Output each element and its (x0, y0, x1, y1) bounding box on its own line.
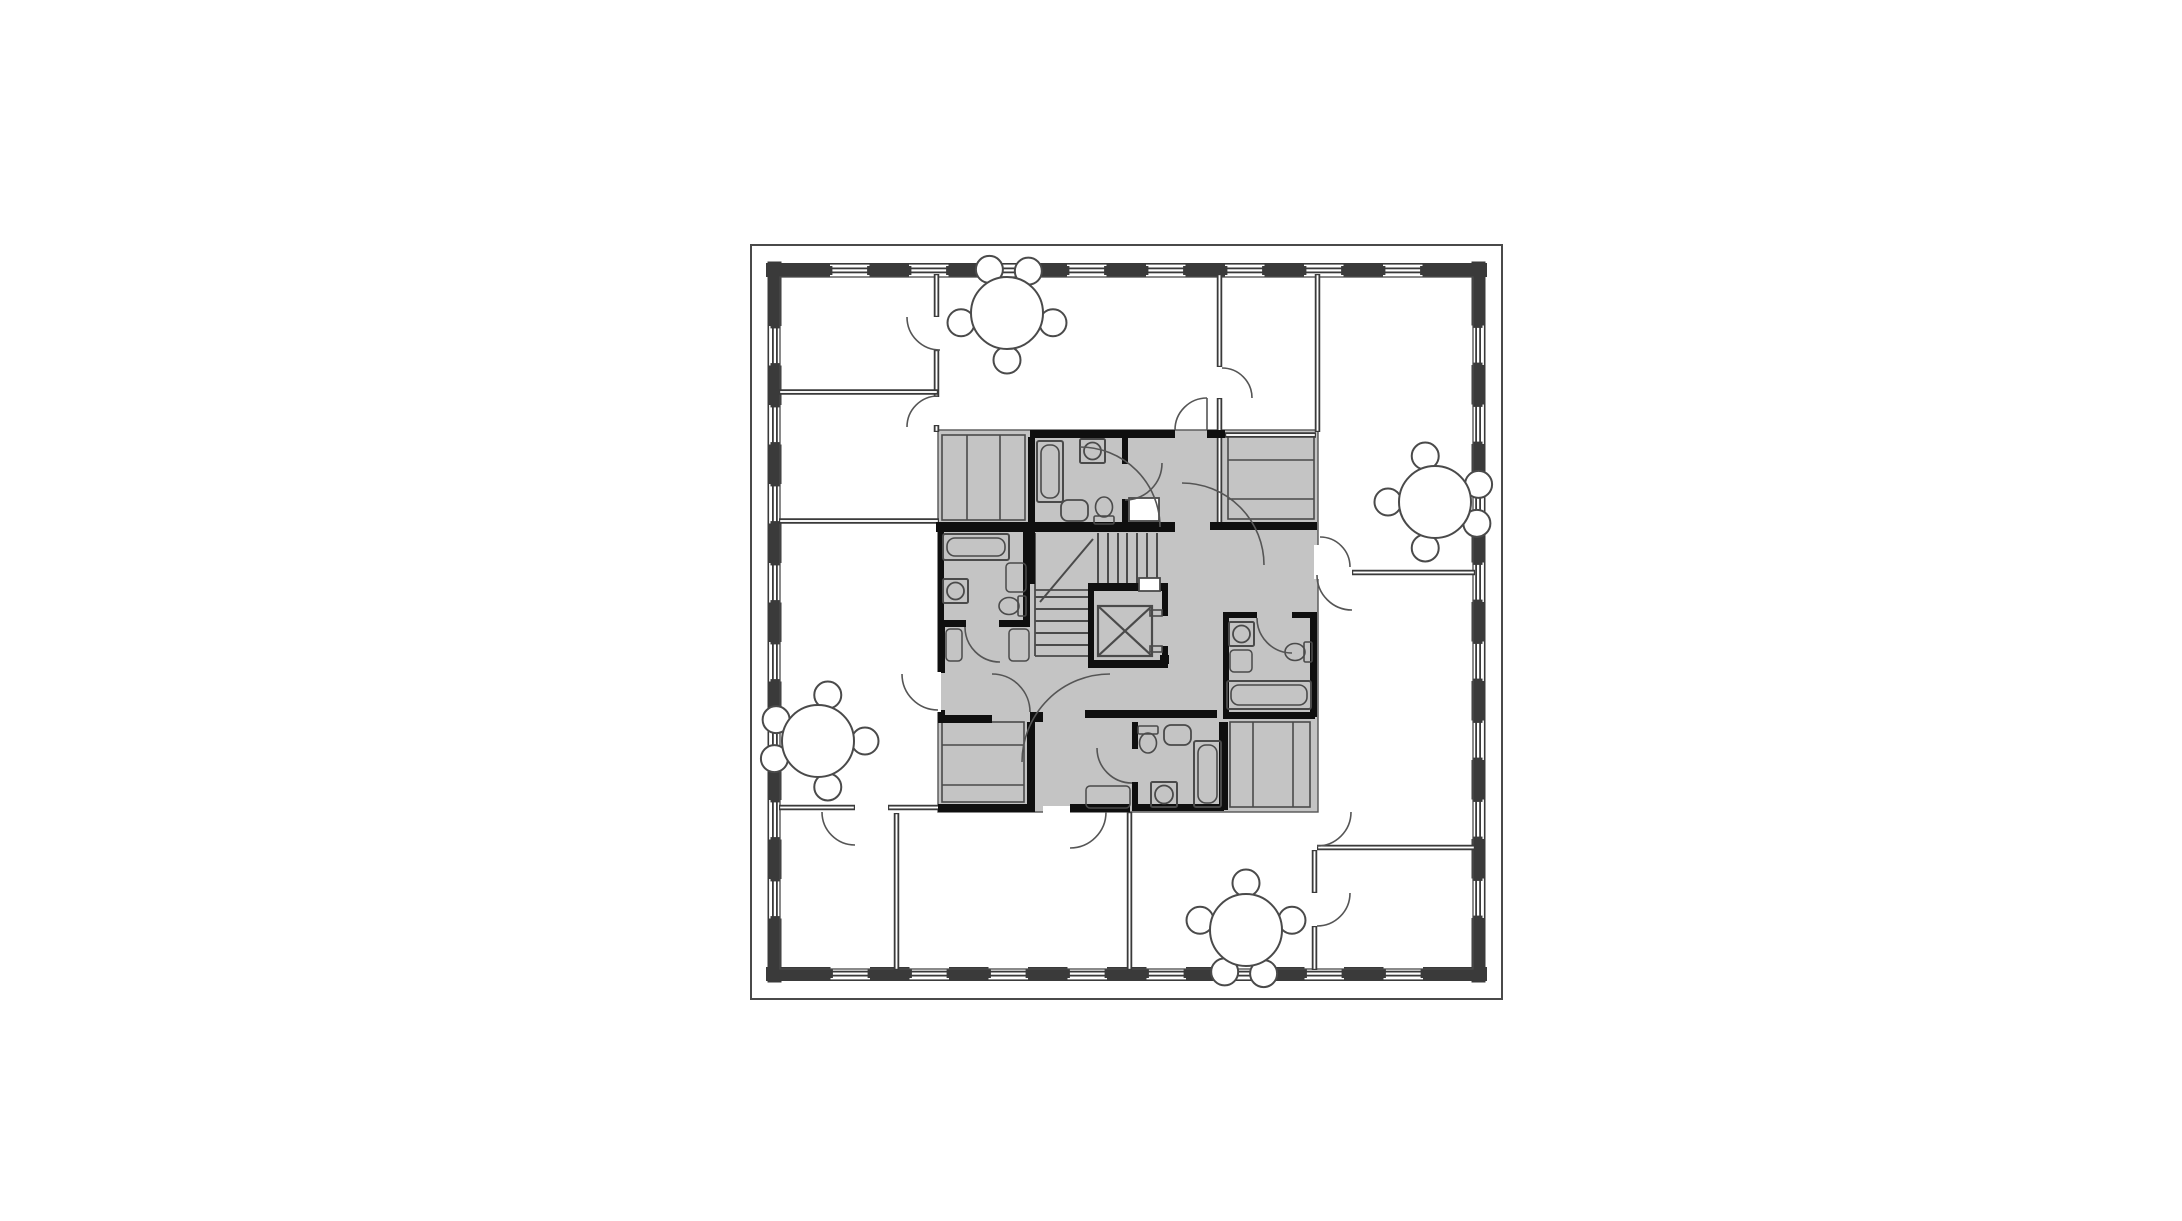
window-glazing-line (831, 975, 871, 977)
wall-pier (1265, 265, 1305, 278)
core-wall-segment (1225, 522, 1317, 530)
window-glazing-line (772, 642, 774, 682)
chair (1233, 870, 1260, 897)
window-glazing-line (776, 800, 778, 840)
window-glazing-line (772, 800, 774, 840)
window-glazing-line (1475, 405, 1477, 445)
partition-wall-core (1318, 847, 1474, 849)
window-frame-cap (1105, 969, 1109, 978)
window-frame-cap (1474, 837, 1483, 841)
window-frame-cap (1474, 916, 1483, 920)
window-glazing-line (989, 975, 1029, 977)
window-glazing-line (1384, 971, 1424, 973)
core-wall-segment (1132, 722, 1138, 749)
core-wall-segment (1030, 430, 1175, 438)
core-wall-segment (938, 804, 1035, 812)
wall-pier (1107, 265, 1147, 278)
door-opening-gap (1314, 545, 1322, 579)
window-glazing-line (772, 879, 774, 919)
window-frame-cap (1026, 969, 1030, 978)
window-glazing-line (909, 268, 949, 270)
window-frame-cap (947, 969, 951, 978)
core-wall-segment (1028, 437, 1035, 524)
window-glazing-line (1304, 268, 1344, 270)
partition-wall-core (896, 814, 898, 969)
window-frame-cap (1262, 266, 1266, 275)
window-glazing-line (909, 272, 949, 274)
window-glazing-line (772, 563, 774, 603)
window-glazing-line (1479, 879, 1481, 919)
partition-wall-core (780, 807, 854, 809)
core-wall-segment (999, 620, 1030, 627)
window-glazing-line (1479, 642, 1481, 682)
window-glazing-line (1475, 879, 1477, 919)
chair (994, 347, 1021, 374)
window-frame-cap (908, 266, 912, 275)
window-frame-cap (1474, 600, 1483, 604)
window-frame-cap (829, 266, 833, 275)
wall-pier (1344, 265, 1384, 278)
duct-box (1129, 498, 1159, 521)
partition-wall-core (1353, 572, 1474, 574)
window-glazing-line (1225, 272, 1265, 274)
window-frame-cap (1474, 640, 1483, 644)
window-glazing-line (1475, 326, 1477, 366)
window-glazing-line (1383, 268, 1423, 270)
window-frame-cap (1474, 679, 1483, 683)
core-wall-segment (938, 715, 992, 723)
core-wall-segment (1085, 710, 1217, 718)
window-glazing-line (1305, 971, 1345, 973)
core-wall-segment (1207, 430, 1225, 438)
window-glazing-line (776, 879, 778, 919)
facade-outer-line (768, 262, 770, 983)
window-frame-cap (1474, 363, 1483, 367)
facade-outer-line (766, 263, 1487, 265)
window-frame-cap (771, 363, 780, 367)
window-frame-cap (1303, 266, 1307, 275)
window-glazing-line (1225, 268, 1265, 270)
window-glazing-line (1147, 975, 1187, 977)
door-opening-gap (934, 672, 941, 712)
core-wall-segment (1027, 722, 1035, 805)
partition-wall-core (936, 351, 938, 396)
elevator-shaft-wall (1088, 660, 1168, 668)
window-glazing-line (1479, 405, 1481, 445)
partition-wall-core (1314, 851, 1316, 892)
window-frame-cap (1066, 266, 1070, 275)
core-wall-segment (1223, 712, 1315, 719)
partition-wall-core (1219, 399, 1221, 523)
window-frame-cap (1341, 266, 1345, 275)
partition-wall-core (1129, 813, 1131, 969)
window-frame-cap (1474, 758, 1483, 762)
window-frame-cap (1342, 969, 1346, 978)
door-opening-gap (1043, 806, 1070, 813)
window-frame-cap (771, 837, 780, 841)
dining-table (1399, 466, 1471, 538)
window-frame-cap (1303, 969, 1307, 978)
partition-wall-core (780, 520, 938, 522)
window-frame-cap (771, 404, 780, 408)
window-frame-cap (1145, 969, 1149, 978)
window-frame-cap (908, 969, 912, 978)
core-wall-segment (1210, 522, 1225, 530)
dining-table (1210, 894, 1282, 966)
window-glazing-line (1067, 268, 1107, 270)
dining-table (782, 705, 854, 777)
window-glazing-line (776, 405, 778, 445)
window-glazing-line (1146, 268, 1186, 270)
window-glazing-line (831, 971, 871, 973)
window-frame-cap (771, 916, 780, 920)
window-glazing-line (772, 326, 774, 366)
window-frame-cap (771, 679, 780, 683)
window-glazing-line (989, 971, 1029, 973)
elevator-shaft-wall (1088, 590, 1094, 665)
window-glazing-line (1479, 800, 1481, 840)
window-glazing-line (1147, 971, 1187, 973)
window-frame-cap (1474, 798, 1483, 802)
partition-wall-core (1219, 275, 1221, 366)
window-frame-cap (771, 600, 780, 604)
window-frame-cap (1474, 877, 1483, 881)
window-frame-cap (1066, 969, 1070, 978)
window-frame-cap (867, 266, 871, 275)
window-frame-cap (1474, 442, 1483, 446)
window-frame-cap (1474, 561, 1483, 565)
window-frame-cap (771, 442, 780, 446)
elevator-shaft-wall (1162, 590, 1168, 616)
floor-plan-drawing (0, 0, 2182, 1221)
window-frame-cap (1474, 719, 1483, 723)
window-frame-cap (771, 799, 780, 803)
window-glazing-line (1475, 563, 1477, 603)
chair (852, 728, 879, 755)
window-frame-cap (1382, 969, 1386, 978)
partition-wall-core (889, 807, 939, 809)
window-glazing-line (830, 272, 870, 274)
window-glazing-line (776, 563, 778, 603)
window-frame-cap (771, 325, 780, 329)
window-glazing-line (772, 405, 774, 445)
floor-plan-page (0, 0, 2182, 1221)
duct-box (1139, 578, 1160, 591)
window-glazing-line (1475, 800, 1477, 840)
window-frame-cap (1184, 969, 1188, 978)
core-wall-segment (938, 627, 945, 673)
window-glazing-line (1146, 272, 1186, 274)
window-frame-cap (1382, 266, 1386, 275)
wall-pier (870, 265, 910, 278)
window-frame-cap (771, 641, 780, 645)
window-frame-cap (771, 562, 780, 566)
window-glazing-line (1475, 721, 1477, 761)
perimeter-wall-top (766, 263, 1487, 277)
partition-wall-core (1314, 927, 1316, 969)
window-glazing-line (776, 326, 778, 366)
core-wall-segment (1292, 612, 1317, 618)
window-glazing-line (1304, 272, 1344, 274)
partition-wall-core (780, 391, 937, 393)
window-frame-cap (1104, 266, 1108, 275)
facade-outer-line (1484, 262, 1486, 983)
window-glazing-line (1475, 642, 1477, 682)
window-frame-cap (829, 969, 833, 978)
window-frame-cap (1145, 266, 1149, 275)
window-frame-cap (868, 969, 872, 978)
window-glazing-line (910, 975, 950, 977)
window-glazing-line (1068, 975, 1108, 977)
window-frame-cap (1474, 324, 1483, 328)
window-glazing-line (772, 484, 774, 524)
window-glazing-line (1479, 721, 1481, 761)
window-frame-cap (1421, 969, 1425, 978)
window-frame-cap (1420, 266, 1424, 275)
window-frame-cap (1474, 403, 1483, 407)
facade-outer-line (766, 979, 1487, 981)
window-frame-cap (987, 969, 991, 978)
window-frame-cap (771, 483, 780, 487)
dining-table (971, 277, 1043, 349)
window-glazing-line (1068, 971, 1108, 973)
window-glazing-line (830, 268, 870, 270)
chair (1375, 489, 1402, 516)
elevator-wall-stub (1160, 655, 1169, 664)
window-glazing-line (910, 971, 950, 973)
core-wall-segment (938, 620, 966, 627)
window-glazing-line (776, 484, 778, 524)
window-glazing-line (1383, 272, 1423, 274)
core-wall-segment (1223, 612, 1257, 618)
partition-wall-core (936, 426, 938, 431)
window-frame-cap (1224, 266, 1228, 275)
partition-wall-core (1226, 434, 1315, 436)
window-frame-cap (1183, 266, 1187, 275)
window-glazing-line (1479, 326, 1481, 366)
window-glazing-line (1384, 975, 1424, 977)
core-area (938, 430, 1318, 812)
partition-wall-core (1317, 275, 1319, 431)
partition-wall-core (936, 275, 938, 316)
window-frame-cap (771, 878, 780, 882)
core-wall-segment (936, 522, 1175, 532)
window-glazing-line (1067, 272, 1107, 274)
core-wall-segment (1122, 499, 1128, 526)
window-glazing-line (776, 642, 778, 682)
window-frame-cap (771, 521, 780, 525)
window-glazing-line (1305, 975, 1345, 977)
window-glazing-line (1479, 563, 1481, 603)
window-frame-cap (946, 266, 950, 275)
core-wall-segment (1028, 528, 1035, 584)
